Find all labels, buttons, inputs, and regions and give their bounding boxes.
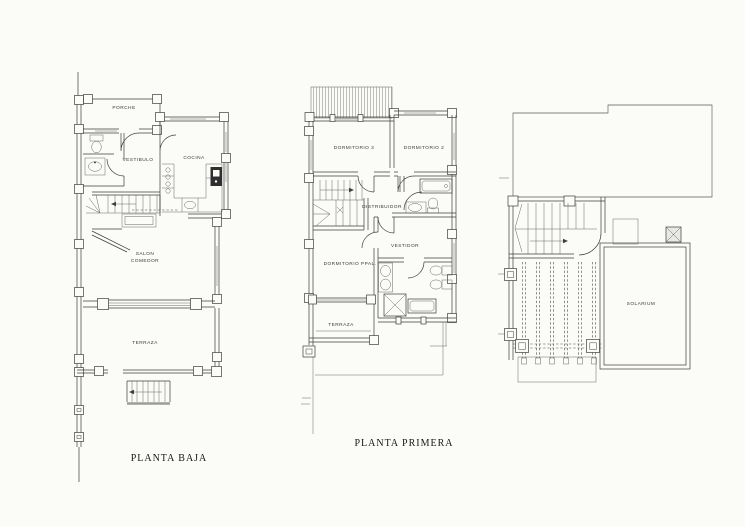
oven-symbol <box>211 167 223 186</box>
plan-caption-planta-baja: PLANTA BAJA <box>131 453 208 464</box>
room-label-vestidor: VESTIDOR <box>391 243 419 249</box>
room-label-vestibulo: VESTIBULO <box>123 157 154 163</box>
plan-planta-primera: DORMITORIO 3 DORMITORIO 2 DISTRIBUIDOR <box>301 87 457 449</box>
bedroom2: DORMITORIO 2 <box>394 109 457 152</box>
staircase-first-floor <box>313 180 368 230</box>
living-dining-room: SALON COMEDOR <box>131 218 222 304</box>
plan-caption-planta-primera: PLANTA PRIMERA <box>354 438 453 449</box>
toilet-symbol <box>430 266 452 275</box>
terrace-first-floor: TERRAZA <box>309 295 379 345</box>
roof-outline <box>499 105 712 197</box>
solarium-deck: SOLARIUM <box>600 219 690 369</box>
terrace-ground-floor: TERRAZA <box>77 299 222 377</box>
room-label-porche: PORCHE <box>112 105 135 111</box>
bathtub-symbol <box>420 179 452 193</box>
ensuite-bathroom <box>378 263 456 324</box>
entry-front-wall <box>83 126 162 152</box>
roof-vent-symbol <box>666 227 681 242</box>
room-label-solarium: SOLARIUM <box>627 301 656 307</box>
roof-staircase <box>498 196 605 360</box>
shower-symbol <box>384 294 406 316</box>
room-label-terraza-p1: TERRAZA <box>328 322 354 328</box>
scanned-floor-plan-sheet: PORCHE VESTIBULO <box>0 0 745 526</box>
room-label-dormitorio-ppal: DORMITORIO PPAL. <box>324 261 377 267</box>
room-label-comedor: COMEDOR <box>131 258 159 264</box>
wc-room: VESTIBULO <box>83 133 153 186</box>
bathtub-symbol <box>408 299 436 313</box>
site-boundary-wall <box>75 72 84 482</box>
interior-staircase <box>86 192 178 252</box>
architectural-drawing: PORCHE VESTIBULO <box>0 0 745 526</box>
porch: PORCHE <box>83 95 162 130</box>
room-label-cocina: COCINA <box>183 155 205 161</box>
room-label-terraza-pb: TERRAZA <box>132 340 158 346</box>
sink-symbol <box>406 202 426 213</box>
kitchen: COCINA <box>156 113 231 219</box>
chimney-symbol <box>613 219 638 244</box>
plan-planta-baja: PORCHE VESTIBULO <box>75 72 231 482</box>
double-sink-vanity-symbol <box>379 263 393 292</box>
roof-hatch-over-porch <box>311 87 392 118</box>
pergola-beams <box>513 262 602 382</box>
room-label-dormitorio2: DORMITORIO 2 <box>404 145 445 151</box>
exterior-staircase <box>127 381 170 404</box>
toilet-symbol <box>428 198 439 213</box>
toilet-symbol <box>90 135 103 153</box>
plan-solarium: SOLARIUM <box>498 105 712 382</box>
room-label-dormitorio3: DORMITORIO 3 <box>334 145 375 151</box>
sink-symbol <box>85 158 105 175</box>
room-label-salon: SALON <box>136 251 155 257</box>
